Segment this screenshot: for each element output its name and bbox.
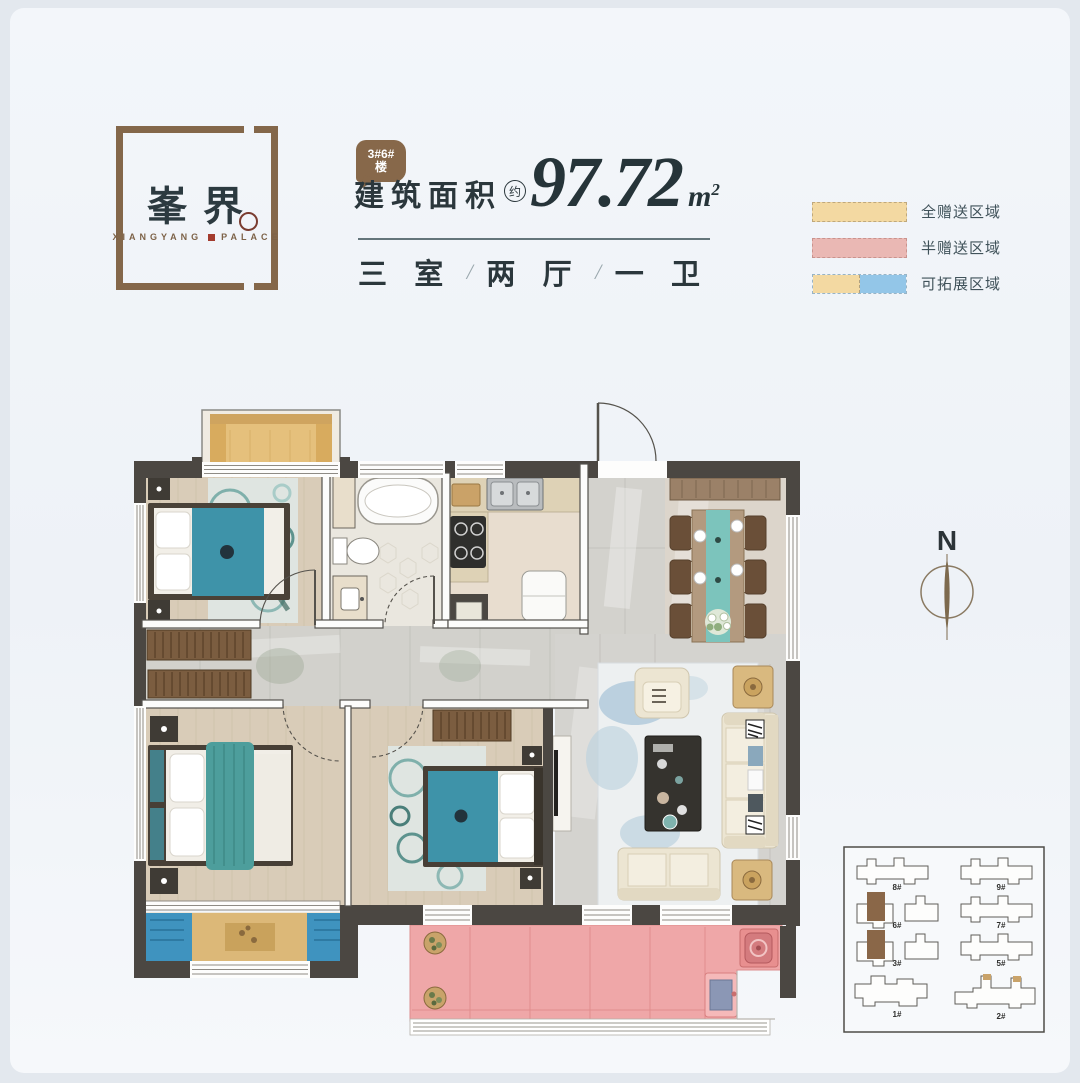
zebra-pillow (746, 720, 764, 738)
brand-latin-prefix: XIANGYANG (112, 232, 202, 242)
header-divider (358, 238, 710, 240)
highlight-6 (867, 892, 885, 921)
rooms-count: 三 室 (358, 251, 453, 293)
svg-text:7#: 7# (997, 921, 1006, 930)
tv (554, 750, 558, 816)
site-plan: 8# 9# 6# 7# 3# 5# 1# 2# (843, 846, 1045, 1033)
logo-frame-bottom (116, 283, 244, 290)
seal-ring-icon (239, 212, 258, 231)
logo-frame-top (116, 126, 244, 133)
side-table (732, 860, 772, 900)
washing-machine (740, 929, 778, 967)
svg-text:5#: 5# (997, 959, 1006, 968)
halls-count: 两 厅 (486, 251, 581, 293)
side-table (733, 666, 773, 708)
flower-centerpiece (705, 609, 731, 635)
potted-plant (424, 932, 446, 954)
dual-swatch-icon (812, 274, 907, 294)
coffee-table (645, 736, 701, 831)
loveseat (618, 848, 720, 900)
svg-text:1#: 1# (893, 1010, 902, 1019)
layout-spec: 三 室 / 两 厅 / 一 卫 (358, 251, 710, 293)
cutting-board (452, 484, 480, 506)
zebra-pillow (746, 816, 764, 834)
potted-plant (424, 987, 446, 1009)
legend-item-full-gift: 全赠送区域 (812, 200, 1001, 223)
pillow (156, 554, 190, 590)
legend-item-half-gift: 半赠送区域 (812, 236, 1001, 259)
brand-latin-suffix: PALACE (221, 232, 281, 242)
bath-cabinet (333, 476, 355, 528)
brochure-card: 峯界 XIANGYANG PALACE 3#6# 楼 建筑面积 约 97.72 … (10, 8, 1070, 1073)
armchair (635, 668, 689, 718)
floor-plan (130, 398, 810, 1058)
toilet-tank (333, 538, 347, 564)
pillow (156, 512, 190, 548)
pillow (170, 808, 204, 856)
wardrobe (433, 710, 511, 741)
blue-pillow (748, 746, 763, 766)
red-square-icon (208, 234, 215, 241)
balcony-laundry-pink (410, 925, 782, 1035)
separator: / (467, 259, 473, 285)
teal-throw (206, 742, 254, 870)
brand-latin: XIANGYANG PALACE (116, 232, 278, 242)
north-label: N (937, 525, 957, 556)
kitchen-board (456, 602, 482, 620)
toilet-bowl (347, 538, 379, 564)
brand-logo: 峯界 XIANGYANG PALACE (116, 126, 278, 290)
area-legend: 全赠送区域 半赠送区域 可拓展区域 (812, 200, 1001, 308)
pillow (500, 818, 534, 858)
pillow (170, 754, 204, 802)
svg-text:6#: 6# (893, 921, 902, 930)
area-label: 建筑面积 (354, 171, 502, 215)
separator: / (595, 259, 601, 285)
legend-item-expandable: 可拓展区域 (812, 272, 1001, 295)
pillow (500, 774, 534, 814)
baths-count: 一 卫 (615, 251, 710, 293)
duvet-dot (220, 545, 234, 559)
sink (341, 588, 359, 610)
logo-frame-bottom-corner (254, 283, 278, 290)
bench-seat (210, 424, 332, 468)
laundry-sink (705, 973, 737, 1017)
sideboard (670, 478, 780, 500)
balcony-master (142, 901, 352, 961)
approx-circle: 约 (504, 180, 526, 202)
highlight-3 (867, 930, 885, 959)
sofa (722, 713, 778, 848)
entry-door (598, 403, 667, 478)
yellow-swatch-icon (812, 202, 907, 222)
compass: N (908, 520, 988, 655)
svg-text:2#: 2# (997, 1012, 1006, 1021)
pink-swatch-icon (812, 238, 907, 258)
area-value: 97.72 (530, 146, 682, 218)
svg-text:9#: 9# (997, 883, 1006, 892)
area-unit: m2 (688, 180, 720, 214)
area-line: 建筑面积 约 97.72 m2 (354, 146, 720, 230)
svg-text:3#: 3# (893, 959, 902, 968)
bench-back (210, 414, 332, 424)
svg-text:8#: 8# (893, 883, 902, 892)
